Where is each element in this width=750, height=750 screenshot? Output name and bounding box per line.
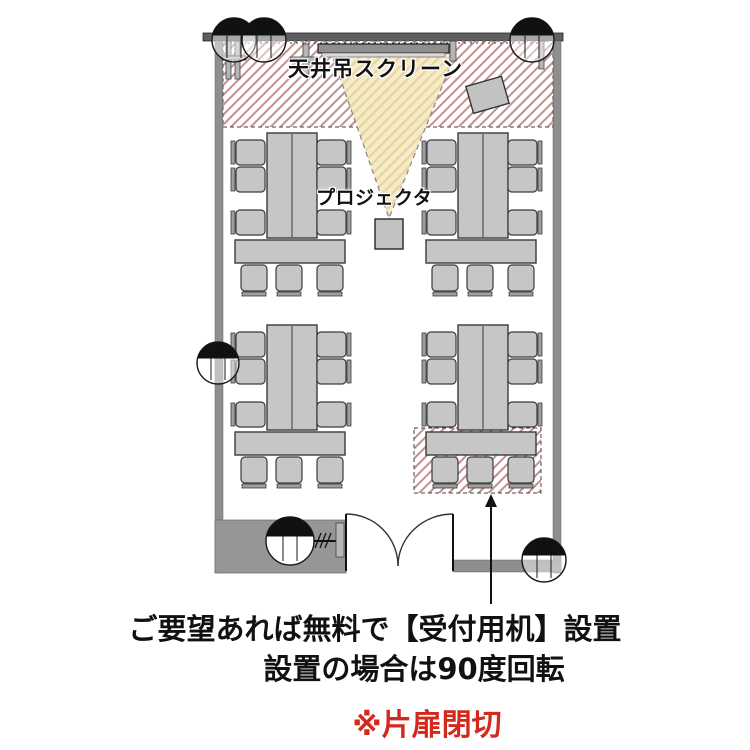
chair: [432, 457, 458, 488]
chair: [432, 265, 458, 296]
chair-backrest: [538, 403, 542, 426]
chair-backrest: [422, 141, 426, 164]
wall-right: [553, 41, 561, 573]
floor-plan-page: 天井吊スクリーン プロジェクタ ご要望あれば無料で【受付用机】設置 設置の場合は…: [0, 0, 750, 750]
chair-seat: [236, 359, 265, 384]
chair: [317, 402, 351, 427]
ceiling-fixture-symbol: [266, 517, 314, 565]
projector: [375, 219, 403, 249]
chair-seat: [508, 167, 537, 192]
chair-backrest: [422, 360, 426, 383]
meeting-table-horizontal: [235, 240, 345, 263]
chair: [467, 457, 493, 488]
chair-seat: [241, 265, 267, 291]
screen-label: 天井吊スクリーン: [288, 53, 463, 83]
chair-seat: [317, 140, 346, 165]
chair-seat: [317, 457, 343, 483]
reception-pointer-arrowhead: [485, 494, 497, 507]
chair: [317, 265, 343, 296]
chair: [276, 457, 302, 488]
chair: [241, 265, 267, 296]
chair-seat: [508, 332, 537, 357]
chair-backrest: [347, 403, 351, 426]
chair-seat: [432, 265, 458, 291]
chair-backrest: [347, 360, 351, 383]
chair-seat: [317, 332, 346, 357]
chair: [241, 457, 267, 488]
chair-backrest: [231, 403, 235, 426]
chair-seat: [236, 140, 265, 165]
chair-seat: [508, 457, 534, 483]
chair: [508, 140, 542, 165]
chair: [467, 265, 493, 296]
meeting-table-horizontal: [426, 240, 536, 263]
chair-seat: [241, 457, 267, 483]
chair: [508, 167, 542, 192]
meeting-table-horizontal: [426, 432, 536, 455]
chair-backrest: [231, 168, 235, 191]
chair-backrest: [347, 141, 351, 164]
chair-seat: [276, 457, 302, 483]
chair: [231, 210, 265, 235]
chair-seat: [317, 402, 346, 427]
ceiling-fixture-symbol: [510, 18, 554, 62]
chair-backrest: [347, 211, 351, 234]
chair-backrest: [422, 403, 426, 426]
annotation-line3: ※片扉閉切: [52, 700, 750, 744]
chair-backrest: [538, 333, 542, 356]
chair-backrest: [433, 484, 457, 488]
chair-backrest: [242, 484, 266, 488]
chair-seat: [508, 359, 537, 384]
chair-backrest: [538, 360, 542, 383]
chair: [508, 332, 542, 357]
chair-backrest: [538, 168, 542, 191]
chair-backrest: [231, 211, 235, 234]
chair-seat: [508, 265, 534, 291]
chair-backrest: [509, 292, 533, 296]
chair: [508, 265, 534, 296]
chair-seat: [427, 359, 456, 384]
chair-seat: [427, 332, 456, 357]
chair: [508, 210, 542, 235]
fixture-filled-segment: [243, 18, 286, 35]
chair: [422, 359, 456, 384]
chair: [231, 402, 265, 427]
ceiling-fixture-symbol: [197, 342, 239, 384]
meeting-table-horizontal: [235, 432, 345, 455]
chair: [317, 210, 351, 235]
chair: [317, 359, 351, 384]
chair-seat: [236, 402, 265, 427]
chair-backrest: [318, 292, 342, 296]
chair-seat: [467, 457, 493, 483]
chair-backrest: [347, 333, 351, 356]
chair: [231, 167, 265, 192]
chair-seat: [236, 332, 265, 357]
chair: [276, 265, 302, 296]
chair: [317, 332, 351, 357]
chair-backrest: [231, 141, 235, 164]
chair-seat: [236, 167, 265, 192]
chair-seat: [508, 402, 537, 427]
ceiling-fixture-symbol: [522, 538, 566, 582]
chair-backrest: [538, 211, 542, 234]
door-swing-left: [346, 514, 398, 566]
chair: [317, 140, 351, 165]
fixture-filled-segment: [511, 18, 554, 35]
chair: [422, 402, 456, 427]
chair-seat: [276, 265, 302, 291]
chair-backrest: [468, 484, 492, 488]
chair: [508, 402, 542, 427]
ceiling-fixture-symbol: [242, 18, 286, 62]
chair-seat: [317, 359, 346, 384]
chair: [422, 332, 456, 357]
annotation-line2: 設置の場合は90度回転: [39, 646, 750, 688]
chair-backrest: [277, 484, 301, 488]
chair-seat: [508, 140, 537, 165]
chair-seat: [508, 210, 537, 235]
projector-label: プロジェクタ: [316, 183, 432, 210]
chair-seat: [317, 265, 343, 291]
door-swing-right: [398, 514, 453, 566]
chair-seat: [236, 210, 265, 235]
chair-seat: [317, 210, 346, 235]
chair-backrest: [318, 484, 342, 488]
chair-backrest: [422, 211, 426, 234]
chair-backrest: [509, 484, 533, 488]
chair-backrest: [468, 292, 492, 296]
chair-seat: [427, 402, 456, 427]
annotation-line1: ご要望あれば無料で【受付用机】設置: [0, 606, 750, 648]
chair: [508, 359, 542, 384]
wall-left: [215, 41, 223, 573]
chair-seat: [432, 457, 458, 483]
chair: [317, 457, 343, 488]
door-side-post: [336, 523, 344, 557]
chair-backrest: [422, 333, 426, 356]
chair-seat: [467, 265, 493, 291]
chair-seat: [427, 140, 456, 165]
chair: [422, 210, 456, 235]
chair-backrest: [433, 292, 457, 296]
chair-backrest: [277, 292, 301, 296]
chair-backrest: [538, 141, 542, 164]
chair: [508, 457, 534, 488]
chair: [231, 140, 265, 165]
screen-bar: [318, 44, 449, 53]
chair-backrest: [242, 292, 266, 296]
chair-seat: [427, 210, 456, 235]
chair: [422, 140, 456, 165]
